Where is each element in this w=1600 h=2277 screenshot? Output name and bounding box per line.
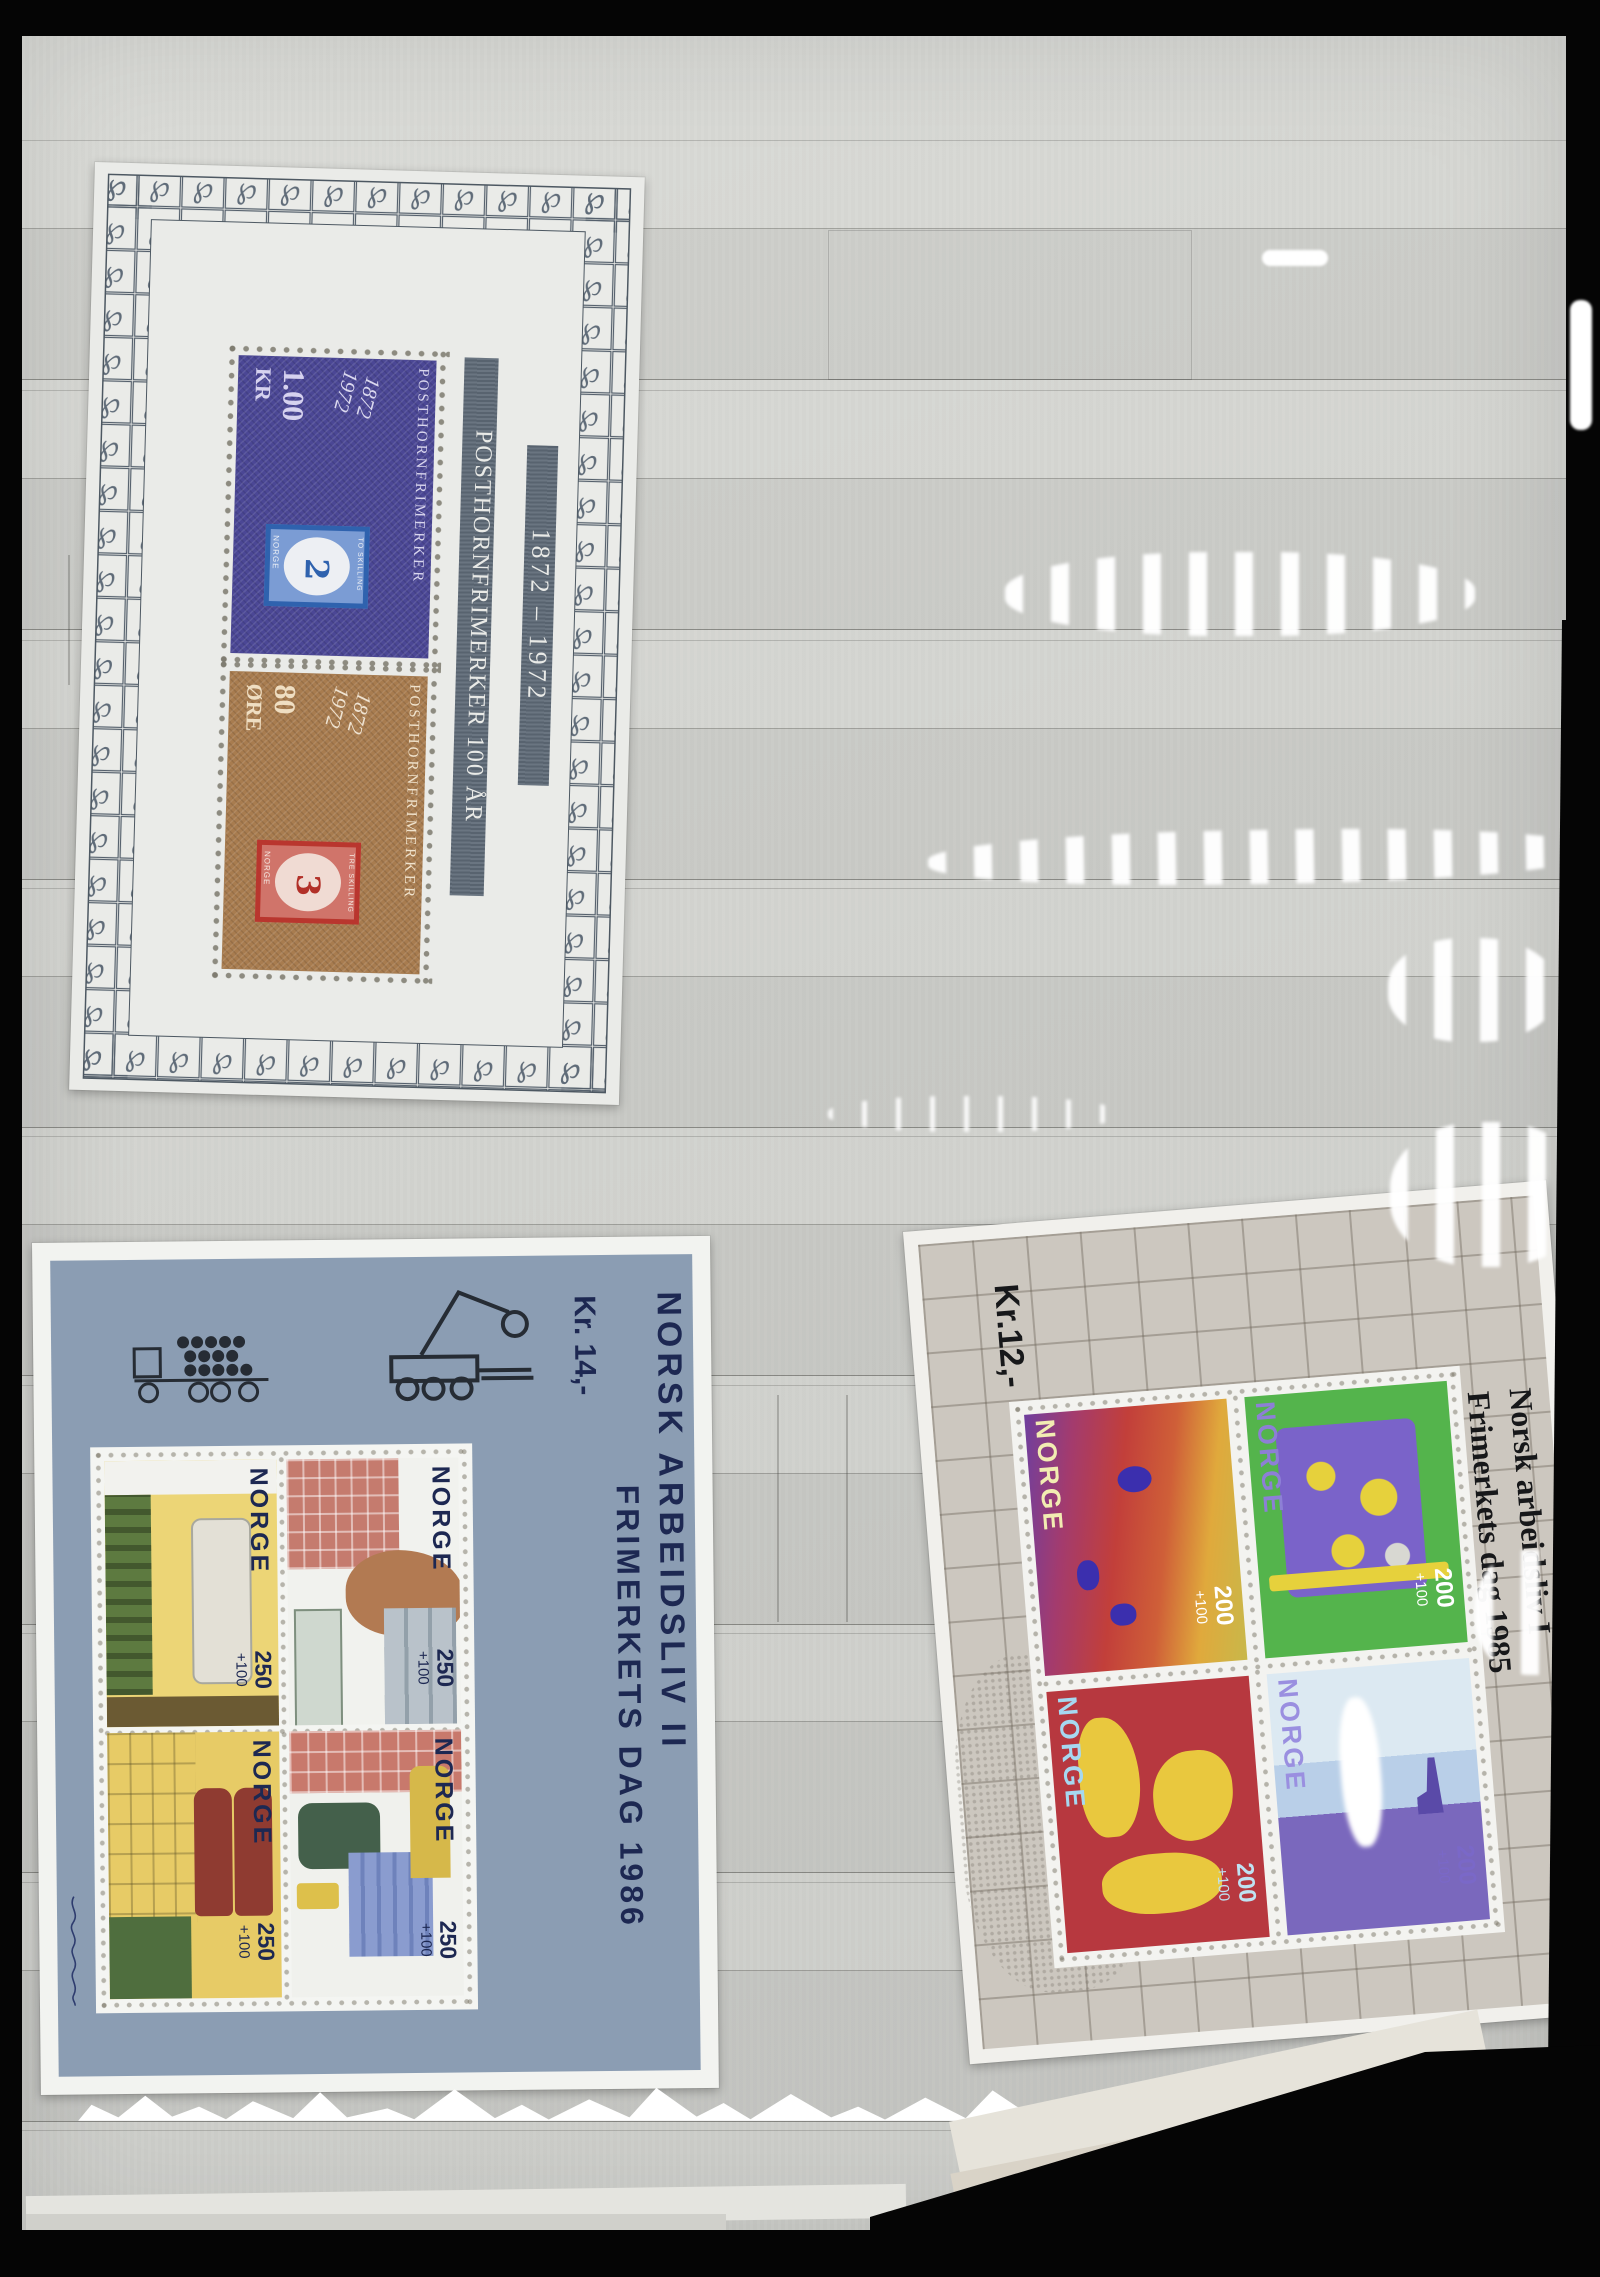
backdrop-edge bbox=[0, 0, 1600, 36]
stamp-1985-workers: NORGE 200+100 bbox=[1046, 1676, 1269, 1953]
pocket-row-line bbox=[22, 140, 1566, 141]
stamp-country: NORGE bbox=[243, 1467, 274, 1617]
inner-numeral: 3 bbox=[288, 838, 329, 933]
stamp-1986-dairy: NORGE 250+100 bbox=[104, 1459, 279, 1727]
inner-stamp-2-skilling: 2 NORGE TO SKILLING bbox=[264, 524, 370, 609]
plastic-glare bbox=[1262, 250, 1328, 266]
art-figures bbox=[1076, 1559, 1100, 1591]
stamp-country: NORGE bbox=[1029, 1418, 1073, 1580]
plastic-glare bbox=[828, 1096, 1118, 1132]
art-rig bbox=[1414, 1756, 1452, 1815]
souvenir-sheet-posthorn-1972: ℘ POSTHORNFRIMERKER 100 ÅR 1872 – 1972 1… bbox=[69, 162, 645, 1105]
art-gusher bbox=[1335, 1696, 1387, 1849]
logging-truck-drawing bbox=[128, 1295, 279, 1432]
stamp-country: NORGE bbox=[1051, 1695, 1095, 1857]
plastic-glare bbox=[1388, 938, 1556, 1042]
stamp-years: 18721972 bbox=[302, 684, 376, 802]
stamp-years: 18721972 bbox=[311, 368, 385, 486]
stamp-value: 1.00KR bbox=[245, 367, 308, 489]
inner-stamp-3-skilling: 3 NORGE TRE SKILLING bbox=[255, 840, 361, 925]
stamp-1985-offshore-rig: NORGE 200+100 bbox=[1267, 1658, 1490, 1935]
stamp-block: NORGE 250+100 NORGE 250+100 bbox=[90, 1443, 478, 2013]
art-figures bbox=[1117, 1465, 1153, 1494]
stamp-1985-machinery: NORGE 200+100 bbox=[1244, 1381, 1467, 1658]
stamp-country: NORGE bbox=[425, 1466, 456, 1616]
pocket-row-line bbox=[22, 1136, 1566, 1137]
souvenir-sheet-arbeidsliv-1986: Kr. 14,- NORSK ARBEIDSLIV II FRIMERKETS … bbox=[32, 1236, 719, 2095]
stamp-country: NORGE bbox=[1249, 1400, 1293, 1562]
stamp-1986-boilerhouse: NORGE 250+100 bbox=[107, 1731, 282, 1999]
backdrop-edge bbox=[0, 2230, 920, 2277]
stamp-value: 80ØRE bbox=[236, 683, 299, 805]
stamp-block: NORGE 200+100 NORGE 200+100 NORGE bbox=[1009, 1366, 1505, 1968]
sheet-price: Kr. 14,- bbox=[567, 1295, 602, 1435]
art-figure bbox=[1100, 1849, 1224, 1918]
art-window-wall bbox=[107, 1732, 197, 1923]
stamp-value: 200+100 bbox=[1409, 1539, 1462, 1638]
stamp-1kr-posthorn: 1.00KR 18721972 POSTHORNFRIMERKER 2 NORG… bbox=[217, 342, 450, 672]
backdrop-edge bbox=[0, 0, 22, 2277]
art-machine bbox=[194, 1788, 233, 1916]
plastic-glare bbox=[1005, 552, 1475, 636]
stamp-value: 250+100 bbox=[232, 1619, 277, 1719]
artist-signature bbox=[65, 1893, 84, 2008]
stamp-caption: POSTHORNFRIMERKER bbox=[398, 684, 423, 966]
stamp-value: 250+100 bbox=[417, 1890, 462, 1990]
photo-of-stamp-album-page: ℘ POSTHORNFRIMERKER 100 ÅR 1872 – 1972 1… bbox=[0, 0, 1600, 2277]
stamp-design: 80ØRE 18721972 POSTHORNFRIMERKER 3 NORGE… bbox=[222, 671, 428, 974]
stamp-1986-sawmill: NORGE 250+100 bbox=[286, 1458, 461, 1726]
plastic-glare bbox=[1570, 300, 1592, 430]
inner-denomination: TO SKILLING bbox=[355, 537, 364, 607]
inner-country: NORGE bbox=[261, 851, 272, 921]
stamp-1985-thermal-field: NORGE 200+100 bbox=[1024, 1399, 1247, 1676]
stamp-80ore-posthorn: 80ØRE 18721972 POSTHORNFRIMERKER 3 NORGE… bbox=[208, 658, 441, 988]
stamp-1986-processplant: NORGE 250+100 bbox=[289, 1730, 464, 1998]
inner-numeral: 2 bbox=[296, 522, 337, 617]
sheet-subtitle: FRIMERKETS DAG 1986 bbox=[609, 1485, 651, 1990]
sheet-title: NORSK ARBEIDSLIV II bbox=[649, 1291, 693, 1816]
art-machines bbox=[105, 1495, 153, 1695]
pocket-slit bbox=[68, 555, 70, 685]
pocket-slit bbox=[777, 1395, 779, 1622]
pocket-slit bbox=[846, 1395, 848, 1622]
stamp-value: 200+100 bbox=[1431, 1816, 1484, 1915]
log-loader-drawing bbox=[380, 1278, 546, 1410]
stamp-country: NORGE bbox=[1271, 1677, 1315, 1839]
art-truck bbox=[297, 1883, 339, 1909]
stamp-country: NORGE bbox=[246, 1739, 277, 1889]
stamp-value: 250+100 bbox=[235, 1891, 280, 1991]
plastic-glare bbox=[1390, 1122, 1585, 1267]
stamp-country: NORGE bbox=[428, 1738, 459, 1888]
stamp-design: 1.00KR 18721972 POSTHORNFRIMERKER 2 NORG… bbox=[230, 355, 436, 658]
art-figures bbox=[1110, 1603, 1138, 1627]
art-figure bbox=[1150, 1747, 1237, 1843]
stamp-caption: POSTHORNFRIMERKER bbox=[406, 368, 431, 650]
inner-country: NORGE bbox=[270, 535, 281, 605]
art-green-base bbox=[109, 1916, 192, 1999]
art-shed bbox=[294, 1609, 343, 1726]
pocket-card-outline bbox=[828, 230, 1192, 380]
stamp-value: 200+100 bbox=[1211, 1834, 1264, 1933]
stamp-value: 200+100 bbox=[1188, 1557, 1241, 1656]
stamp-value: 250+100 bbox=[414, 1618, 459, 1718]
inner-denomination: TRE SKILLING bbox=[346, 853, 355, 923]
